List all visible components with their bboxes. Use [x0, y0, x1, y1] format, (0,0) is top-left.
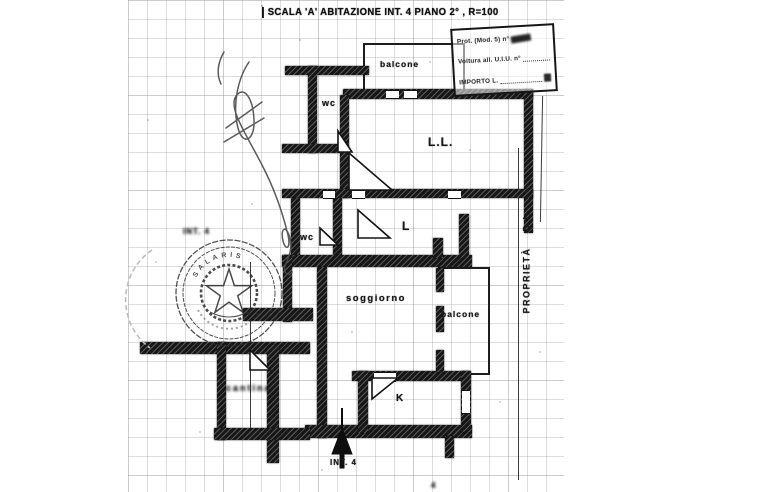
stamp-prot-label: Prot. (Mod. 5) n°: [457, 36, 510, 46]
room-label-l: L: [402, 219, 410, 233]
room-label-living: soggiorno: [346, 293, 406, 304]
wall-segment: [308, 66, 317, 153]
room-label-ll: L.L.: [428, 135, 453, 149]
stamp-importo-label: IMPORTO L.: [459, 77, 499, 86]
room-label-wc-mid: wc: [300, 232, 314, 242]
handwritten-scribble: [511, 34, 532, 44]
wall-segment: [243, 308, 313, 321]
stamp-row-voltura: Voltura all. U.I.U. n°: [458, 53, 550, 65]
door-opening: [323, 190, 335, 199]
corner-mark: 4: [431, 481, 436, 490]
room-label-kitchen: K: [396, 393, 404, 404]
page-title: SCALA 'A' ABITAZIONE INT. 4 PIANO 2° , R…: [262, 7, 499, 18]
window-opening: [462, 390, 470, 414]
protocol-stamp-box: Prot. (Mod. 5) n° Voltura all. U.I.U. n°…: [450, 23, 558, 97]
stamp-voltura-label: Voltura all. U.I.U. n°: [458, 55, 521, 66]
wall-segment: [214, 428, 310, 440]
wall-segment: [291, 198, 300, 260]
door-opening: [448, 190, 461, 199]
wall-segment: [267, 345, 279, 463]
side-note: INT. 4: [183, 227, 210, 236]
wall-segment: [317, 267, 327, 438]
wall-segment: [285, 66, 369, 75]
wall-segment: [436, 350, 444, 372]
window-opening: [404, 90, 417, 99]
door-opening: [352, 190, 365, 199]
dotted-leader: [500, 75, 542, 84]
scanned-floor-plan-page: SCALA 'A' ABITAZIONE INT. 4 PIANO 2° , R…: [0, 0, 764, 492]
wall-segment: [459, 214, 469, 258]
wall-segment: [282, 255, 472, 267]
room-label-cellar: cantina: [226, 383, 272, 393]
door-opening: [374, 372, 396, 382]
entrance-label: INT. 4: [330, 458, 357, 467]
wall-segment: [445, 436, 454, 458]
wall-segment: [358, 371, 368, 433]
stamp-row-prot: Prot. (Mod. 5) n°: [457, 34, 549, 46]
wall-segment: [352, 371, 470, 381]
balcony-mid-outline: [438, 267, 490, 375]
room-label-wc-top: wc: [322, 98, 336, 108]
room-label-balcony-mid: balcone: [441, 309, 480, 319]
window-opening: [386, 90, 399, 99]
wall-segment: [282, 144, 348, 153]
wall-segment: [282, 189, 533, 198]
wall-segment: [217, 342, 226, 440]
room-label-balcony-top: balcone: [380, 59, 419, 69]
wall-segment: [436, 268, 444, 292]
property-abbr: D.I.: [522, 211, 535, 231]
wall-segment: [433, 238, 443, 258]
stamp-row-importo: IMPORTO L.: [459, 73, 551, 86]
dotted-leader: [523, 53, 550, 61]
handwritten-mark: [544, 73, 551, 81]
property-label: PROPRIETÀ: [522, 248, 535, 314]
wall-segment: [340, 95, 349, 198]
wall-segment: [333, 198, 342, 258]
property-caption: PROPRIETÀ D.I.: [522, 193, 535, 333]
